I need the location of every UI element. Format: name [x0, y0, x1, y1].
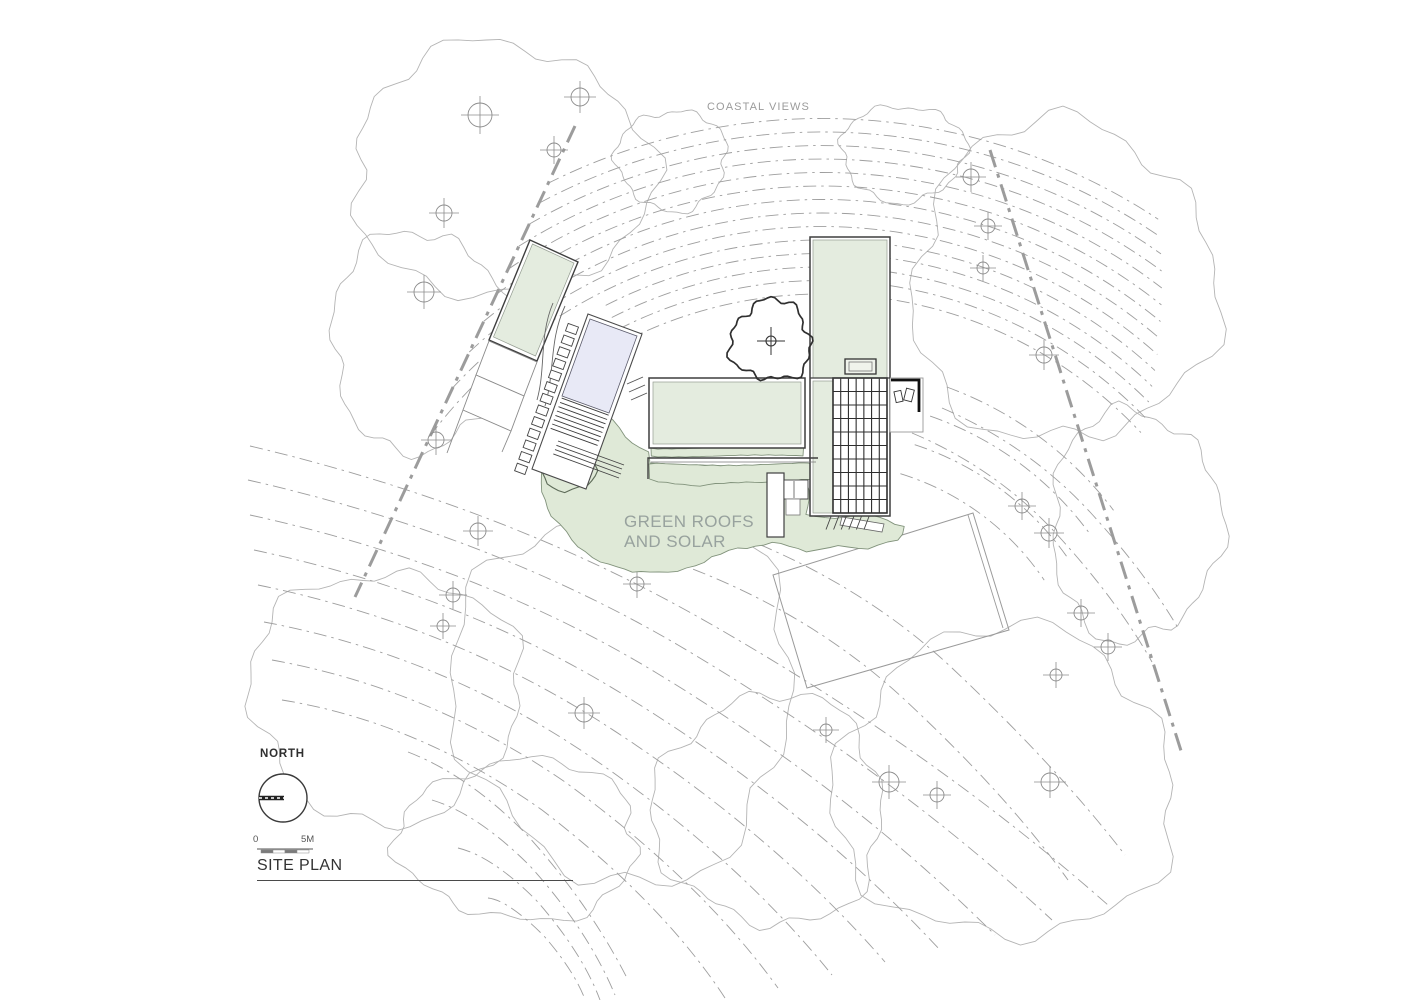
stepping-stone	[557, 347, 570, 358]
stepping-stone	[527, 428, 540, 439]
stepping-stone	[536, 405, 549, 416]
scale-5m-label: 5M	[301, 834, 314, 845]
north-label: NORTH	[260, 748, 305, 760]
green-roofs-solar-label: GREEN ROOFSAND SOLAR	[624, 512, 754, 552]
green-roofs-line2: AND SOLAR	[624, 532, 726, 551]
green-roofs-line1: GREEN ROOFS	[624, 512, 754, 531]
site-plan-drawing	[0, 0, 1414, 1000]
scale-zero-label: 0	[253, 834, 258, 845]
stepping-stone	[566, 323, 579, 334]
stepping-stone	[532, 417, 545, 428]
coastal-views-label: COASTAL VIEWS	[707, 101, 810, 113]
stepping-stone	[515, 463, 528, 474]
feature-tree	[727, 297, 813, 381]
stepping-stone	[561, 335, 574, 346]
site-plan-page: COASTAL VIEWS GREEN ROOFSAND SOLAR NORTH…	[0, 0, 1414, 1000]
contour-lines	[248, 118, 1178, 1000]
stepping-stone	[544, 382, 557, 393]
stepping-stone	[523, 440, 536, 451]
site-plan-underline	[257, 880, 573, 881]
stepping-stone	[553, 358, 566, 369]
scale-bar	[257, 849, 313, 853]
stepping-stone	[519, 452, 532, 463]
north-arrow	[259, 774, 307, 822]
site-plan-title: SITE PLAN	[257, 857, 342, 875]
stepping-stone	[540, 393, 553, 404]
